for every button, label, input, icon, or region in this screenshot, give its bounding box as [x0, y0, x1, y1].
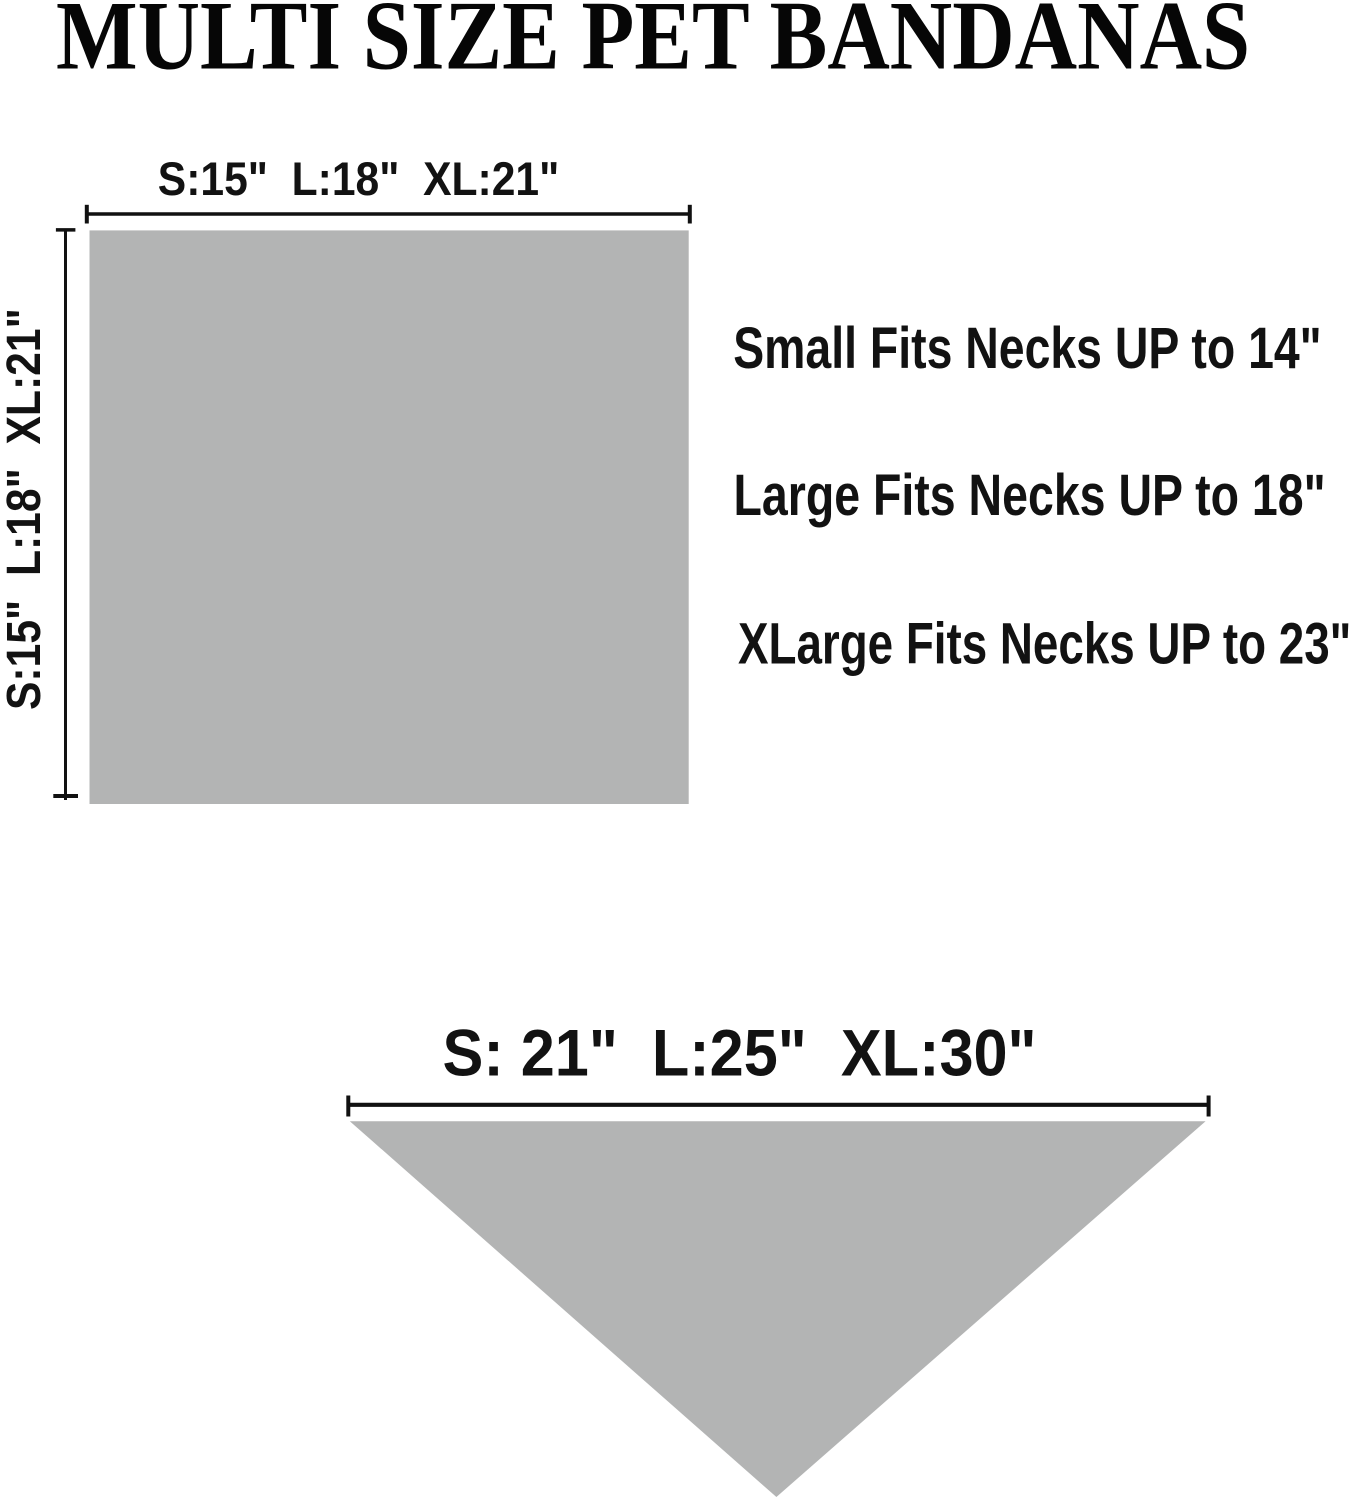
svg-text:S:15" L:18" XL:21": S:15" L:18" XL:21": [0, 308, 50, 710]
svg-text:Small Fits Necks UP to 14": Small Fits Necks UP to 14": [733, 316, 1321, 381]
svg-text:S:15" L:18" XL:21": S:15" L:18" XL:21": [158, 152, 559, 206]
svg-text:S: 21" L:25" XL:30": S: 21" L:25" XL:30": [443, 1018, 1037, 1090]
svg-text:XLarge Fits Necks UP to 23": XLarge Fits Necks UP to 23": [738, 611, 1351, 677]
svg-text:Large Fits Necks UP to 18": Large Fits Necks UP to 18": [734, 463, 1326, 528]
svg-text:MULTI SIZE PET BANDANAS: MULTI SIZE PET BANDANAS: [56, 0, 1250, 90]
